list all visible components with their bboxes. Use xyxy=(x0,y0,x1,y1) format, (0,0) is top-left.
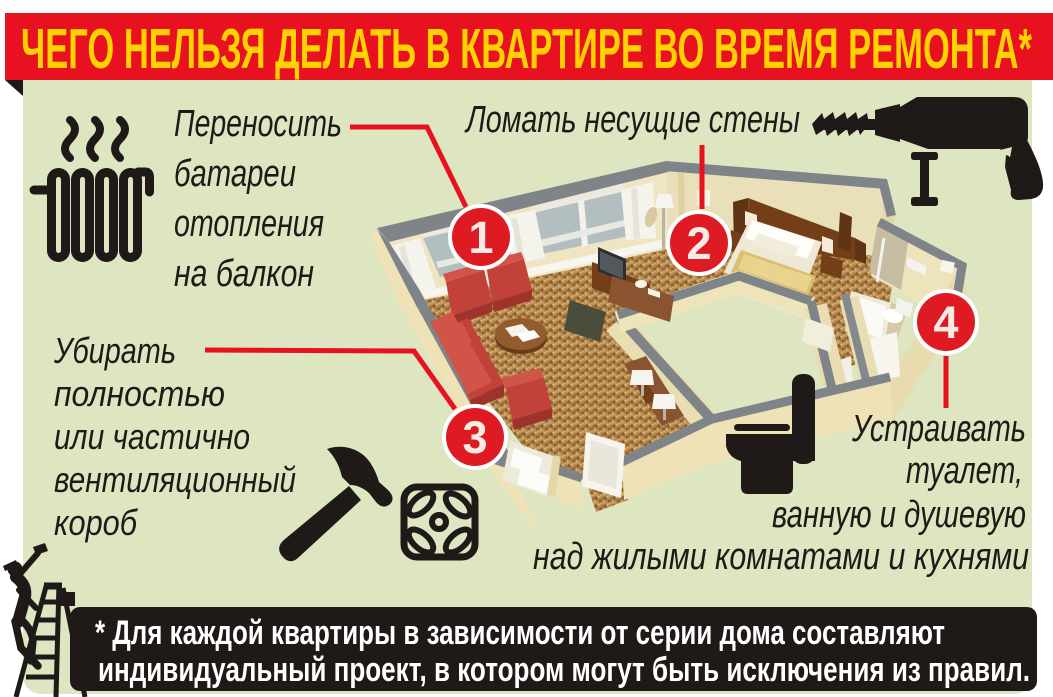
svg-text:3: 3 xyxy=(462,412,487,463)
svg-text:4: 4 xyxy=(933,297,958,348)
svg-text:Устраивать: Устраивать xyxy=(851,408,1026,450)
svg-text:ЧЕГО НЕЛЬЗЯ ДЕЛАТЬ В КВАРТИРЕ: ЧЕГО НЕЛЬЗЯ ДЕЛАТЬ В КВАРТИРЕ ВО ВРЕМЯ Р… xyxy=(21,17,1032,81)
svg-text:Переносить: Переносить xyxy=(174,103,342,145)
svg-text:Ломать несущие стены: Ломать несущие стены xyxy=(464,99,800,141)
svg-text:Убирать: Убирать xyxy=(53,330,176,371)
svg-text:1: 1 xyxy=(468,212,493,263)
svg-text:короб: короб xyxy=(54,502,138,543)
svg-text:туалет,: туалет, xyxy=(906,450,1023,492)
svg-text:* Для каждой квартиры в зависи: * Для каждой квартиры в зависимости от с… xyxy=(95,614,945,652)
svg-text:индивидуальный проект, в котор: индивидуальный проект, в котором могут б… xyxy=(98,651,1030,689)
svg-text:ванную и душевую: ванную и душевую xyxy=(772,494,1026,536)
svg-text:отопления: отопления xyxy=(174,203,324,245)
svg-text:2: 2 xyxy=(686,218,711,269)
svg-text:или частично: или частично xyxy=(54,416,250,457)
svg-text:на балкон: на балкон xyxy=(174,253,314,295)
svg-text:вентиляционный: вентиляционный xyxy=(54,459,296,500)
svg-text:над жилыми комнатами и кухнями: над жилыми комнатами и кухнями xyxy=(533,536,1029,578)
svg-text:полностью: полностью xyxy=(54,373,225,414)
svg-text:батареи: батареи xyxy=(174,153,296,195)
